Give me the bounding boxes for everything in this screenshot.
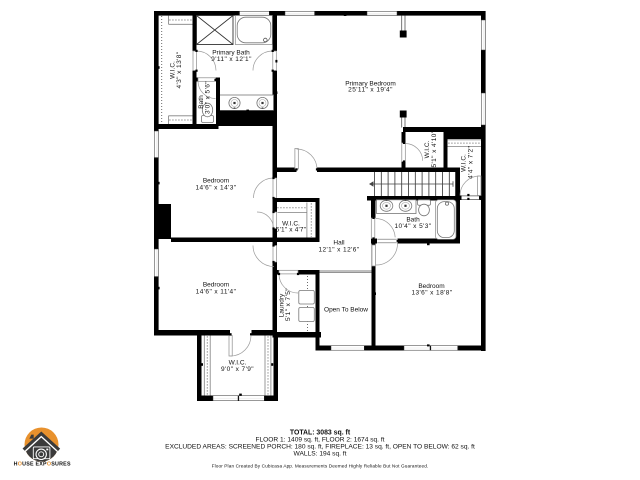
svg-text:5'1" x 7'5": 5'1" x 7'5": [285, 288, 292, 321]
svg-text:Open To Below: Open To Below: [324, 307, 368, 314]
svg-text:Floor Plan Created By Cubicasa: Floor Plan Created By Cubicasa App. Meas…: [212, 464, 429, 469]
svg-text:4'3" x 13'8": 4'3" x 13'8": [176, 51, 183, 88]
svg-text:13'6" x 18'8": 13'6" x 18'8": [411, 290, 452, 297]
svg-text:4'4" x 7'2": 4'4" x 7'2": [467, 146, 474, 179]
svg-text:WALLS: 194 sq. ft: WALLS: 194 sq. ft: [294, 451, 347, 458]
svg-text:14'6" x 11'4": 14'6" x 11'4": [196, 289, 237, 296]
svg-text:TOTAL: 3083 sq. ft: TOTAL: 3083 sq. ft: [290, 430, 351, 437]
svg-text:HOUSE EXPOSURES: HOUSE EXPOSURES: [14, 461, 71, 467]
svg-text:3'0" x 5'6": 3'0" x 5'6": [204, 81, 211, 114]
svg-text:5'1" x 4'7": 5'1" x 4'7": [276, 227, 307, 234]
svg-text:Bedroom: Bedroom: [203, 282, 229, 289]
svg-text:9'0" x 7'9": 9'0" x 7'9": [221, 366, 254, 373]
svg-text:9'11" x 12'1": 9'11" x 12'1": [211, 56, 252, 63]
svg-text:10'4" x 5'3": 10'4" x 5'3": [394, 223, 431, 230]
svg-text:Bedroom: Bedroom: [203, 177, 229, 184]
svg-text:5'1" x 4'10": 5'1" x 4'10": [431, 130, 438, 167]
svg-text:FLOOR 1: 1409 sq. ft, FLOOR 2:: FLOOR 1: 1409 sq. ft, FLOOR 2: 1674 sq. …: [255, 437, 384, 444]
svg-text:25'11" x 19'4": 25'11" x 19'4": [348, 86, 393, 93]
svg-text:14'6" x 14'3": 14'6" x 14'3": [195, 185, 236, 192]
svg-text:12'1" x 12'6": 12'1" x 12'6": [318, 246, 359, 253]
